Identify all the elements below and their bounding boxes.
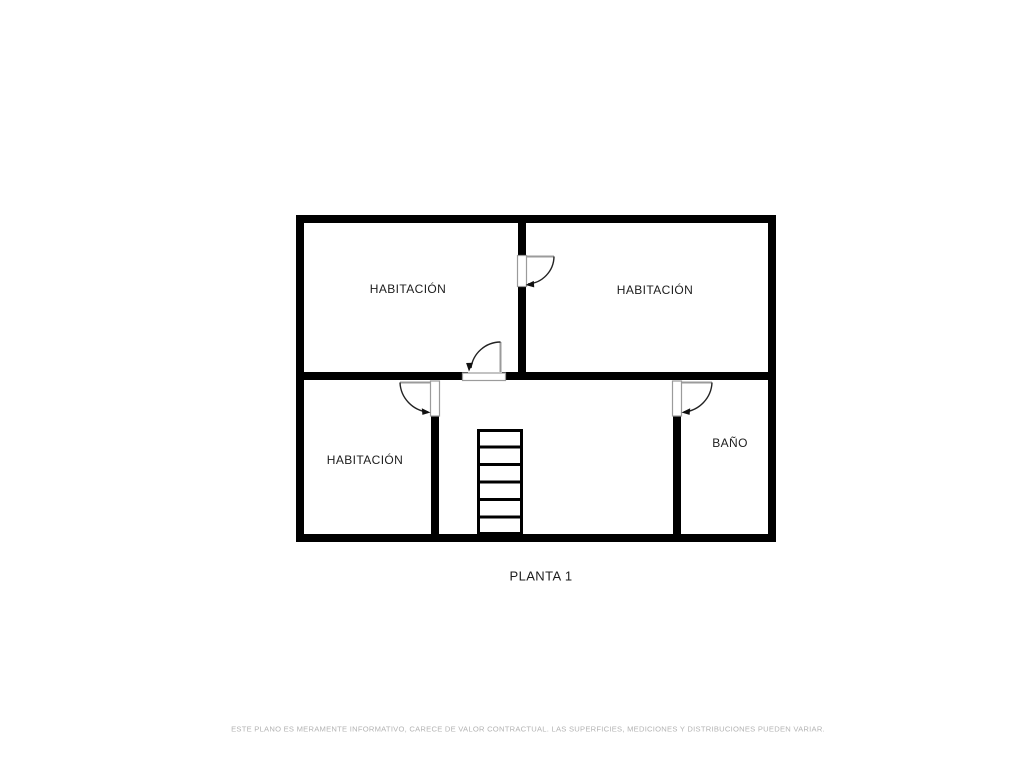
room-label-bedroom-bottom-left: HABITACIÓN bbox=[327, 453, 403, 467]
door-sill bbox=[463, 373, 506, 381]
interior-wall-top-vertical-upper bbox=[518, 223, 526, 255]
interior-walls bbox=[304, 223, 768, 534]
door-swing-arc bbox=[400, 383, 428, 413]
room-label-bathroom: BAÑO bbox=[712, 436, 748, 450]
outer-wall-top bbox=[296, 215, 776, 223]
room-label-bedroom-top-right: HABITACIÓN bbox=[617, 283, 693, 297]
disclaimer-text: ESTE PLANO ES MERAMENTE INFORMATIVO, CAR… bbox=[231, 725, 825, 734]
door-bathroom bbox=[673, 381, 713, 416]
outer-wall-right bbox=[768, 215, 776, 542]
door-swing-arc bbox=[684, 383, 712, 413]
door-swing-arc bbox=[528, 257, 554, 285]
interior-wall-bathroom bbox=[673, 416, 681, 534]
door-leaf bbox=[431, 381, 440, 416]
room-label-bedroom-top-left: HABITACIÓN bbox=[370, 282, 446, 296]
floor-title: PLANTA 1 bbox=[510, 569, 573, 584]
door-swing-arrow bbox=[422, 408, 431, 415]
interior-wall-horizontal-left bbox=[304, 372, 468, 380]
door-swing-arrow bbox=[682, 408, 691, 415]
door-swing-arc bbox=[471, 342, 501, 368]
door-hall-top bbox=[463, 342, 506, 381]
interior-wall-top-vertical-lower bbox=[518, 287, 526, 372]
door-swing-arrow bbox=[466, 363, 473, 372]
door-leaf bbox=[518, 256, 527, 287]
floor-plan-drawing bbox=[0, 0, 1024, 768]
door-top-bedrooms bbox=[518, 256, 555, 288]
stairs bbox=[477, 431, 523, 534]
door-bedroom-bottom-left bbox=[400, 381, 440, 416]
interior-wall-bedroom-bottom-left bbox=[431, 416, 439, 534]
door-leaf bbox=[673, 381, 682, 416]
outer-wall-left bbox=[296, 215, 304, 542]
floor-plan-page: HABITACIÓN HABITACIÓN HABITACIÓN BAÑO PL… bbox=[0, 0, 1024, 768]
interior-wall-horizontal-right bbox=[502, 372, 768, 380]
outer-wall-bottom bbox=[296, 534, 776, 542]
